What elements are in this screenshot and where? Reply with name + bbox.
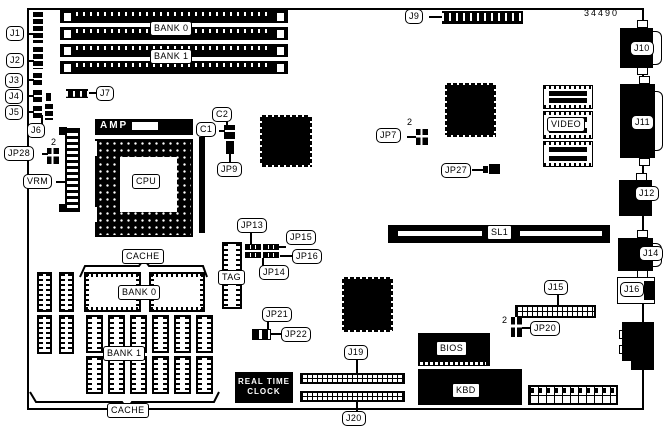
connector-bottom-header	[528, 385, 618, 405]
label-jp15: JP15	[286, 230, 316, 245]
motherboard-diagram: 34490 BANK 0 BANK 1 J1 J2 J3 J4 J5 J6 J7…	[0, 0, 664, 430]
port-tab	[637, 67, 648, 75]
chipset-chip-1	[260, 115, 312, 167]
label-j7: J7	[96, 86, 114, 101]
cache-chip-bank1	[152, 315, 169, 353]
jumper-jp7	[416, 129, 428, 145]
leader-vrm	[56, 181, 65, 183]
label-jp20: JP20	[530, 321, 560, 336]
cache-chip-bank1	[86, 356, 103, 394]
port-tab	[639, 76, 650, 84]
label-tag: TAG	[218, 270, 245, 285]
connector-jp27-b	[489, 164, 500, 174]
leader-c1	[219, 130, 225, 132]
jumper-jp13	[245, 244, 261, 250]
label-jp7: JP7	[376, 128, 401, 143]
part-number: 34490	[584, 8, 619, 18]
label-sl1: SL1	[487, 225, 512, 240]
cache-chip-bank1	[130, 356, 147, 394]
rtc-text-line1: REAL TIME	[235, 377, 293, 387]
connector-j20	[300, 391, 405, 402]
label-j10: J10	[630, 41, 654, 56]
socket-notch-top	[92, 141, 97, 156]
label-jp22: JP22	[281, 327, 311, 342]
port-tab	[639, 158, 650, 166]
label-j12: J12	[635, 186, 659, 201]
label-c1: C1	[196, 122, 216, 137]
connector-j3	[33, 73, 42, 87]
label-j19: J19	[344, 345, 368, 360]
label-cache-top: CACHE	[122, 249, 164, 264]
dip-chip	[59, 272, 74, 312]
label-c2: C2	[212, 107, 232, 122]
label-bios: BIOS	[436, 341, 467, 356]
slot-sl1-key-right	[520, 231, 602, 236]
leader-j20	[356, 402, 358, 411]
port-tab	[637, 20, 648, 28]
label-j5: J5	[5, 105, 23, 120]
connector-j6	[45, 104, 53, 120]
real-time-clock-chip: REAL TIME CLOCK	[235, 372, 293, 403]
leader-jp13	[250, 233, 252, 245]
connector-jp27-a	[483, 166, 488, 173]
label-j20: J20	[342, 411, 366, 426]
leader-j19	[356, 360, 358, 373]
label-bank1-simm: BANK 1	[150, 49, 192, 64]
cache-chip-bank1	[108, 356, 125, 394]
label-jp27: JP27	[441, 163, 471, 178]
port-din-notch	[620, 361, 631, 371]
leader-jp22	[271, 333, 281, 335]
cache-chip-bank1	[196, 315, 213, 353]
socket-lever	[199, 137, 205, 233]
label-jp21: JP21	[262, 307, 292, 322]
cache-chip-bank1	[196, 356, 213, 394]
connector-j6-upper	[46, 93, 51, 101]
leader-jp21	[267, 321, 269, 330]
label-bank0-cache: BANK 0	[118, 285, 160, 300]
rtc-text-line2: CLOCK	[235, 387, 293, 397]
video-chip-3	[543, 141, 593, 167]
label-jp14: JP14	[259, 265, 289, 280]
label-jp16: JP16	[292, 249, 322, 264]
label-j11: J11	[631, 115, 654, 130]
jumper-jp20	[511, 317, 522, 337]
label-jp13: JP13	[237, 218, 267, 233]
connector-j7	[66, 89, 88, 98]
marker-jp28-pin: 2	[51, 137, 56, 147]
socket-notch-bottom	[92, 207, 97, 222]
bios-pins	[420, 362, 486, 365]
jumper-jp21-jp22	[252, 329, 271, 340]
marker-jp7-pin: 2	[407, 117, 412, 127]
cache-chip-bank1	[86, 315, 103, 353]
simm-pins	[76, 12, 272, 16]
label-j14: J14	[639, 246, 663, 261]
cache-chip-bank1	[174, 315, 191, 353]
label-kbd: KBD	[452, 383, 480, 398]
leader-jp28	[42, 153, 48, 155]
socket-window	[132, 122, 158, 130]
label-j4: J4	[5, 89, 23, 104]
dip-chip	[59, 315, 74, 354]
leader-jp15	[275, 246, 286, 248]
connector-j1	[33, 12, 43, 43]
jumper-jp16	[263, 252, 279, 258]
label-j3: J3	[5, 73, 23, 88]
chipset-chip-3	[342, 277, 393, 332]
label-bank0-simm: BANK 0	[150, 21, 192, 36]
video-chip-1	[543, 85, 593, 109]
slot-sl1-key-left	[398, 231, 482, 236]
leader-jp7	[407, 136, 416, 138]
leader-jp16	[280, 255, 292, 257]
label-jp28: JP28	[4, 146, 34, 161]
dip-chip	[37, 272, 52, 312]
port-j16-pin	[644, 281, 655, 300]
label-j16: J16	[620, 282, 644, 297]
chipset-chip-2	[445, 83, 496, 137]
leader-j3	[27, 79, 34, 81]
label-video: VIDEO	[547, 117, 585, 132]
vrm-connector	[65, 128, 80, 212]
label-cache-bottom: CACHE	[107, 403, 149, 418]
label-j15: J15	[544, 280, 568, 295]
cache-chip-bank1	[152, 356, 169, 394]
label-j1: J1	[6, 26, 24, 41]
leader-j4	[27, 95, 34, 97]
dip-chip	[37, 315, 52, 354]
label-j9: J9	[405, 9, 423, 24]
leader-j1	[28, 33, 34, 35]
cache-chip-bank1	[174, 356, 191, 394]
leader-j2	[28, 60, 34, 62]
label-jp9: JP9	[217, 162, 242, 177]
label-vrm: VRM	[23, 174, 52, 189]
socket-strip	[95, 135, 193, 139]
leader-j15	[557, 295, 559, 305]
connector-jp9	[226, 141, 234, 154]
leader-j9	[429, 16, 442, 18]
connector-j9	[442, 11, 523, 24]
amp-logo: AMP	[100, 120, 128, 131]
leader-j5	[27, 111, 34, 113]
label-bank1-cache: BANK 1	[103, 346, 145, 361]
marker-jp20-pin: 2	[502, 315, 507, 325]
port-tab	[637, 230, 648, 238]
capacitor-c1	[224, 125, 235, 139]
label-j6: J6	[27, 123, 45, 138]
connector-j19	[300, 373, 405, 384]
connector-j15	[515, 305, 596, 318]
jumper-jp14	[245, 252, 261, 258]
leader-jp27	[472, 169, 483, 171]
connector-j4	[33, 90, 42, 103]
connector-j2	[33, 47, 43, 69]
jumper-jp28	[47, 148, 59, 164]
label-cpu: CPU	[132, 174, 160, 189]
label-j2: J2	[6, 53, 24, 68]
